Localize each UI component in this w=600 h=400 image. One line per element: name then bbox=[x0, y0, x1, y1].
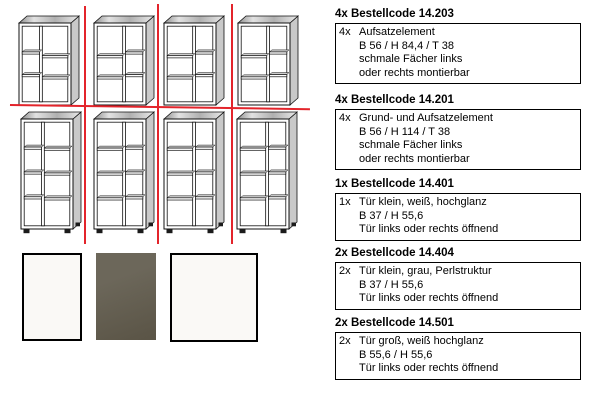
spec-section-14-404: 2x Bestellcode 14.404 2xTür klein, grau,… bbox=[335, 247, 581, 310]
red-guide-line-vertical bbox=[231, 4, 233, 244]
spec-line: oder rechts montierbar bbox=[339, 67, 577, 81]
spec-text: Tür klein, weiß, hochglanz bbox=[359, 196, 487, 208]
swatch-grey-pearl bbox=[96, 253, 156, 340]
red-guide-line-vertical bbox=[84, 6, 86, 244]
spec-section-14-401: 1x Bestellcode 14.401 1xTür klein, weiß,… bbox=[335, 178, 581, 241]
spec-line: schmale Fächer links bbox=[339, 139, 577, 153]
spec-line: oder rechts montierbar bbox=[339, 153, 577, 167]
spec-line: Tür links oder rechts öffnend bbox=[339, 362, 577, 376]
qty-label: 4x bbox=[339, 112, 359, 126]
spec-line: B 56 / H 114 / T 38 bbox=[339, 126, 577, 140]
spec-line: Tür links oder rechts öffnend bbox=[339, 223, 577, 237]
spec-line: B 56 / H 84,4 / T 38 bbox=[339, 40, 577, 54]
shelf-grund-2 bbox=[93, 111, 155, 240]
shelf-aufsatz-2 bbox=[93, 15, 155, 112]
qty-label: 2x bbox=[339, 335, 359, 349]
spec-line: 2xTür klein, grau, Perlstruktur bbox=[339, 265, 577, 279]
order-code-heading: 4x Bestellcode 14.203 bbox=[335, 8, 581, 20]
qty-label: 1x bbox=[339, 196, 359, 210]
spec-section-14-201: 4x Bestellcode 14.201 4xGrund- und Aufsa… bbox=[335, 94, 581, 170]
spec-box: 4xGrund- und Aufsatzelement B 56 / H 114… bbox=[335, 109, 581, 170]
spec-line: B 37 / H 55,6 bbox=[339, 279, 577, 293]
spec-line: 4xAufsatzelement bbox=[339, 26, 577, 40]
spec-box: 2xTür klein, grau, Perlstruktur B 37 / H… bbox=[335, 262, 581, 310]
spec-box: 4xAufsatzelement B 56 / H 84,4 / T 38 sc… bbox=[335, 23, 581, 84]
order-code-heading: 4x Bestellcode 14.201 bbox=[335, 94, 581, 106]
shelf-aufsatz-3 bbox=[163, 15, 225, 112]
shelf-grund-4 bbox=[236, 111, 298, 240]
spec-line: 1xTür klein, weiß, hochglanz bbox=[339, 196, 577, 210]
spec-line: schmale Fächer links bbox=[339, 53, 577, 67]
spec-section-14-501: 2x Bestellcode 14.501 2xTür groß, weiß h… bbox=[335, 317, 581, 380]
spec-text: Tür klein, grau, Perlstruktur bbox=[359, 265, 492, 277]
swatch-white-gloss-large bbox=[170, 253, 258, 342]
qty-label: 4x bbox=[339, 26, 359, 40]
qty-label: 2x bbox=[339, 265, 359, 279]
spec-line: 2xTür groß, weiß hochglanz bbox=[339, 335, 577, 349]
catalog-page: 4x Bestellcode 14.203 4xAufsatzelement B… bbox=[0, 0, 600, 400]
spec-line: 4xGrund- und Aufsatzelement bbox=[339, 112, 577, 126]
spec-text: Grund- und Aufsatzelement bbox=[359, 112, 493, 124]
spec-section-14-203: 4x Bestellcode 14.203 4xAufsatzelement B… bbox=[335, 8, 581, 84]
order-code-heading: 2x Bestellcode 14.404 bbox=[335, 247, 581, 259]
spec-line: B 55,6 / H 55,6 bbox=[339, 349, 577, 363]
spec-text: Tür groß, weiß hochglanz bbox=[359, 335, 484, 347]
spec-line: Tür links oder rechts öffnend bbox=[339, 292, 577, 306]
order-code-heading: 1x Bestellcode 14.401 bbox=[335, 178, 581, 190]
order-code-heading: 2x Bestellcode 14.501 bbox=[335, 317, 581, 329]
swatch-white-gloss-small bbox=[22, 253, 82, 341]
shelf-aufsatz-1 bbox=[18, 15, 80, 112]
shelf-grund-3 bbox=[163, 111, 225, 240]
spec-box: 2xTür groß, weiß hochglanz B 55,6 / H 55… bbox=[335, 332, 581, 380]
spec-box: 1xTür klein, weiß, hochglanz B 37 / H 55… bbox=[335, 193, 581, 241]
spec-line: B 37 / H 55,6 bbox=[339, 210, 577, 224]
shelf-aufsatz-4 bbox=[237, 15, 299, 112]
shelf-grund-1 bbox=[20, 111, 82, 240]
spec-text: Aufsatzelement bbox=[359, 26, 435, 38]
red-guide-line-vertical bbox=[157, 4, 159, 244]
